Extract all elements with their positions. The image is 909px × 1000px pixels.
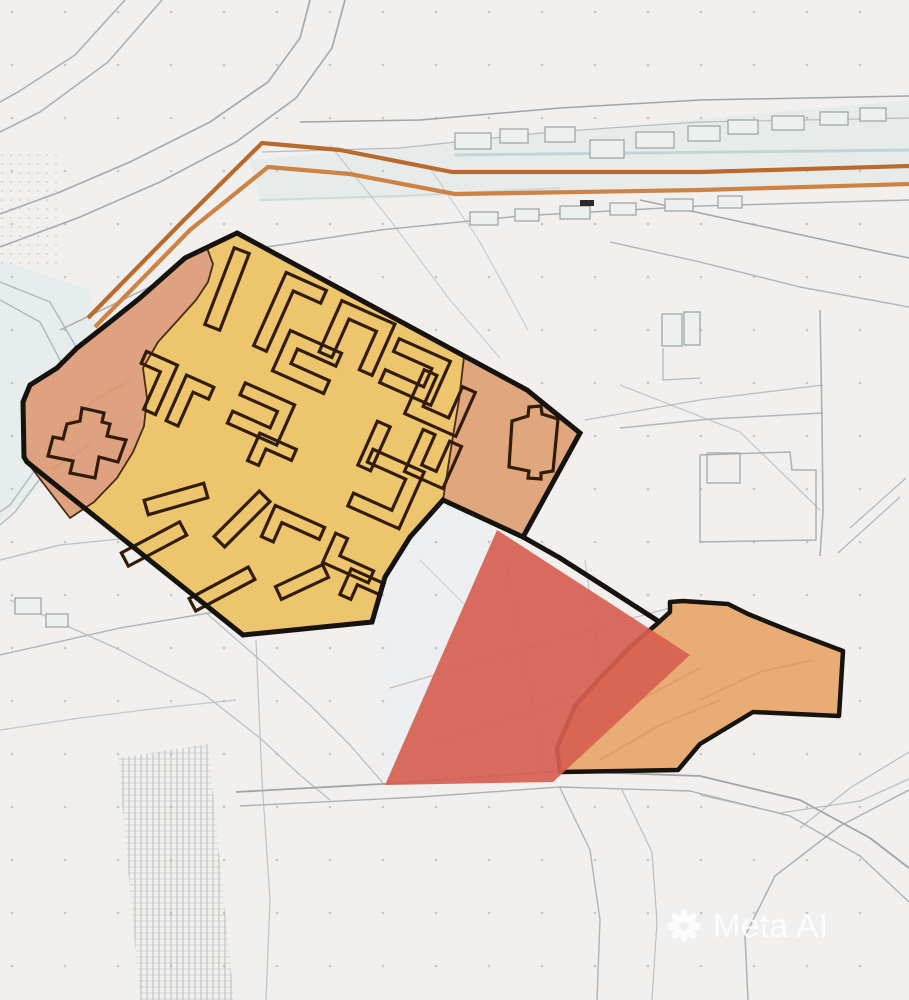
cadastral-zoning-map <box>0 0 909 1000</box>
fine-dot-patch <box>0 148 62 266</box>
site-plan-screenshot: Meta AI <box>0 0 909 1000</box>
